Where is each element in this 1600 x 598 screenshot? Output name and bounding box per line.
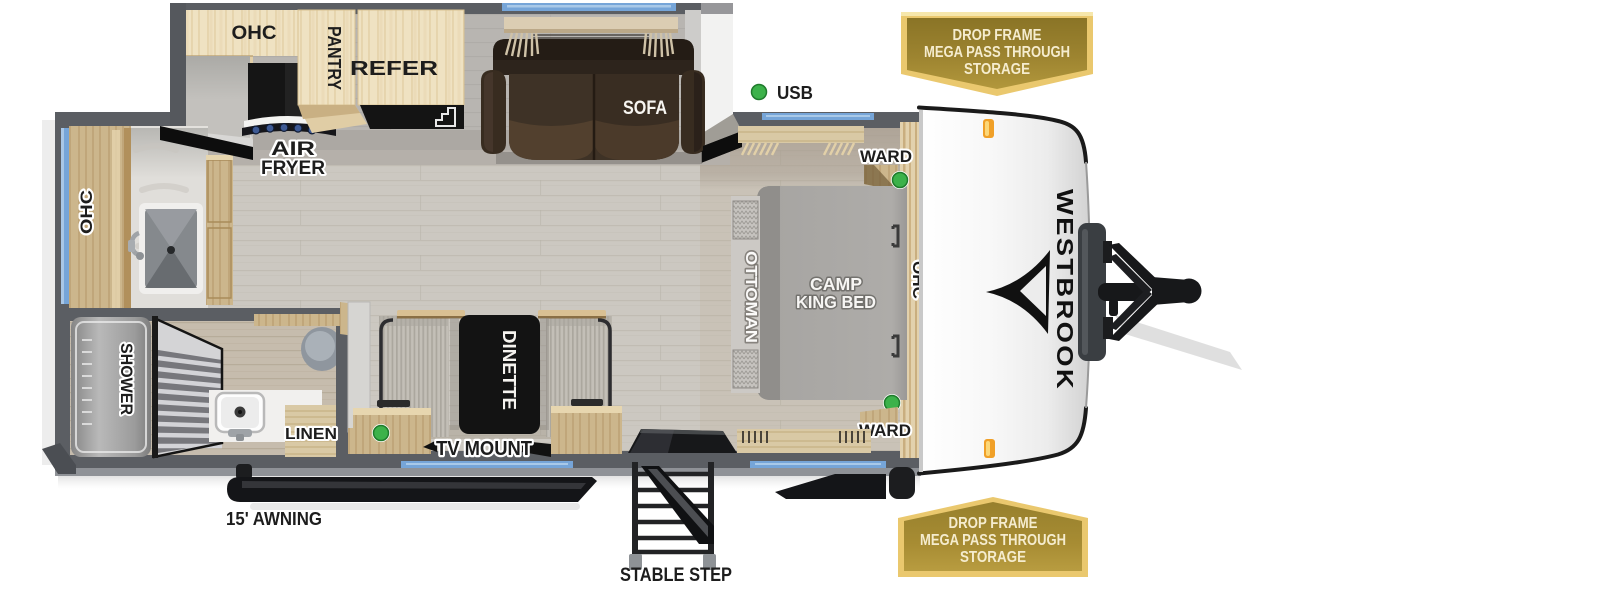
svg-text:15' AWNING: 15' AWNING [226,509,322,529]
svg-text:MEGA PASS THROUGH: MEGA PASS THROUGH [924,44,1070,61]
svg-text:PANTRY: PANTRY [324,26,344,90]
svg-text:DROP FRAME: DROP FRAME [949,515,1038,532]
svg-text:OHC: OHC [77,190,96,234]
svg-text:CAMP: CAMP [810,274,862,294]
svg-text:USB: USB [777,83,813,103]
svg-text:STABLE STEP: STABLE STEP [620,565,732,586]
svg-text:WARD: WARD [860,147,912,166]
svg-text:TV MOUNT: TV MOUNT [436,438,532,460]
svg-text:LINEN: LINEN [285,426,337,443]
svg-text:REFER: REFER [350,58,439,80]
svg-text:OHC: OHC [232,23,277,44]
svg-text:OTTOMAN: OTTOMAN [742,251,759,343]
svg-text:SOFA: SOFA [623,98,667,119]
svg-text:STORAGE: STORAGE [964,61,1030,78]
svg-text:DINETTE: DINETTE [499,330,519,410]
svg-text:WESTBROOK: WESTBROOK [1052,189,1078,391]
svg-text:MEGA PASS THROUGH: MEGA PASS THROUGH [920,532,1066,549]
svg-text:STORAGE: STORAGE [960,549,1026,566]
svg-text:FRYER: FRYER [261,158,325,179]
svg-text:AIR: AIR [271,139,315,160]
svg-text:SHOWER: SHOWER [117,343,135,415]
svg-text:DROP FRAME: DROP FRAME [953,27,1042,44]
svg-text:KING BED: KING BED [796,292,876,312]
